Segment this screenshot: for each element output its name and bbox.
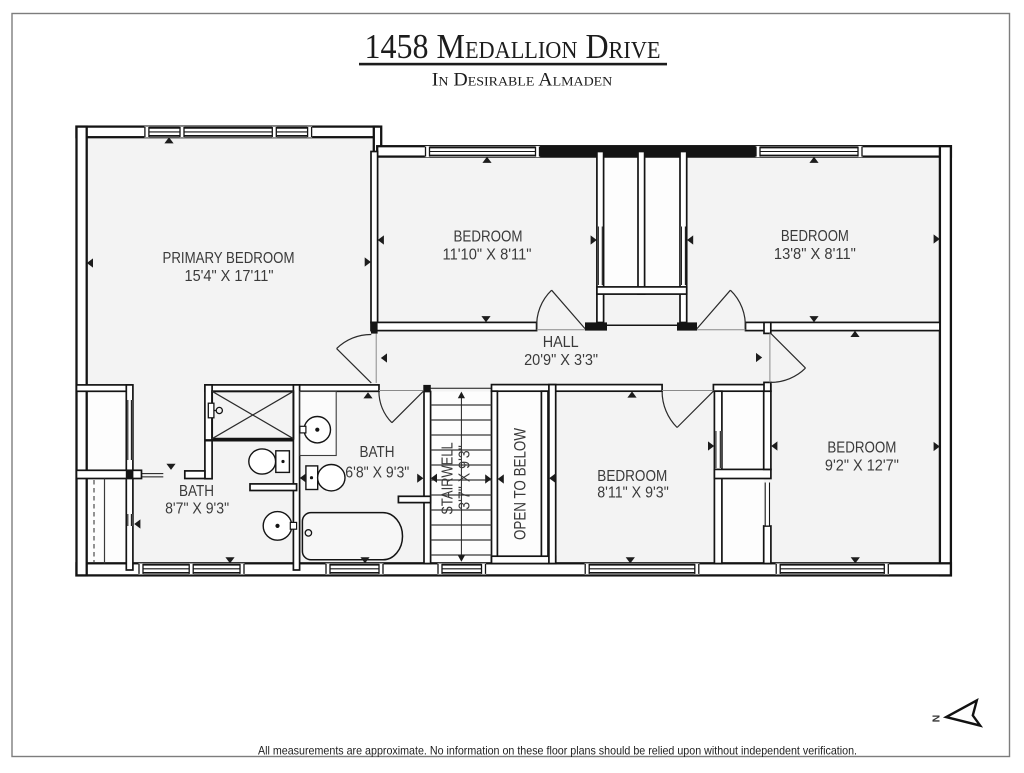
- svg-text:11'10" X 8'11": 11'10" X 8'11": [443, 247, 532, 264]
- svg-text:HALL: HALL: [543, 334, 579, 351]
- svg-text:BEDROOM: BEDROOM: [781, 228, 849, 245]
- svg-text:All measurements are approxima: All measurements are approximate. No inf…: [258, 745, 857, 758]
- svg-text:BATH: BATH: [360, 444, 395, 461]
- svg-text:15'4" X 17'11": 15'4" X 17'11": [185, 268, 274, 285]
- svg-text:BEDROOM: BEDROOM: [827, 440, 896, 457]
- svg-text:3'7" X 9'3": 3'7" X 9'3": [457, 445, 474, 510]
- svg-text:8'11" X 9'3": 8'11" X 9'3": [597, 485, 669, 502]
- svg-text:BEDROOM: BEDROOM: [597, 468, 667, 485]
- svg-text:9'2" X 12'7": 9'2" X 12'7": [825, 458, 899, 475]
- svg-text:13'8" X 8'11": 13'8" X 8'11": [774, 246, 856, 263]
- svg-text:BATH: BATH: [179, 483, 214, 500]
- svg-text:BEDROOM: BEDROOM: [454, 229, 523, 246]
- svg-text:In Desirable Almaden: In Desirable Almaden: [432, 71, 613, 91]
- svg-text:STAIRWELL: STAIRWELL: [439, 442, 456, 515]
- svg-text:6'8" X 9'3": 6'8" X 9'3": [345, 464, 409, 481]
- svg-text:1458 Medallion Drive: 1458 Medallion Drive: [365, 28, 661, 66]
- svg-text:OPEN TO BELOW: OPEN TO BELOW: [511, 427, 529, 540]
- svg-text:PRIMARY BEDROOM: PRIMARY BEDROOM: [163, 250, 295, 267]
- svg-text:20'9" X 3'3": 20'9" X 3'3": [524, 352, 598, 369]
- svg-text:N: N: [930, 715, 942, 723]
- svg-text:8'7" X 9'3": 8'7" X 9'3": [165, 501, 229, 518]
